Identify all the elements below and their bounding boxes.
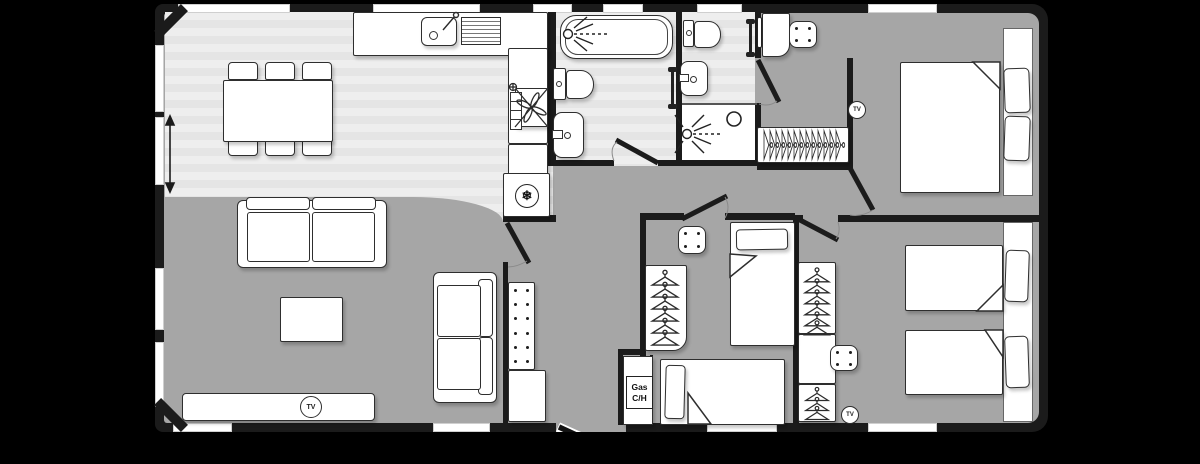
sofa-cushion bbox=[312, 212, 375, 262]
wardrobe bbox=[798, 384, 836, 422]
dressing-table bbox=[762, 13, 790, 57]
sofa-back bbox=[312, 197, 376, 210]
hall-shelf-unit bbox=[508, 282, 535, 370]
toilet-bowl bbox=[694, 21, 721, 48]
double-bed bbox=[900, 62, 1000, 193]
wardrobe bbox=[757, 127, 849, 163]
sofa-cushion bbox=[437, 338, 481, 390]
gas-label-line2: C/H bbox=[632, 393, 647, 404]
pillow bbox=[1004, 250, 1030, 303]
window bbox=[155, 45, 164, 112]
wardrobe bbox=[645, 265, 687, 351]
basin-tap bbox=[679, 74, 689, 82]
mirror bbox=[757, 17, 762, 48]
window bbox=[433, 423, 490, 432]
entrance-door-opening bbox=[556, 423, 626, 432]
sink-drain bbox=[429, 31, 438, 40]
kitchen-sink bbox=[421, 17, 457, 46]
hob-burner bbox=[510, 119, 522, 130]
basin-tap-handle bbox=[564, 132, 571, 139]
wall bbox=[725, 213, 795, 220]
snowflake-icon: ❄ bbox=[515, 184, 539, 208]
toilet-flush bbox=[556, 81, 562, 87]
sink-drainer bbox=[461, 17, 501, 45]
dining-table bbox=[223, 80, 333, 142]
pillow bbox=[1004, 336, 1030, 389]
bedside-unit bbox=[678, 226, 706, 254]
towel-rail-cap bbox=[668, 104, 677, 109]
tv-unit bbox=[182, 393, 375, 421]
hall-cupboard bbox=[508, 370, 546, 422]
sofa bbox=[237, 200, 387, 268]
kitchen-counter bbox=[508, 144, 548, 175]
wall bbox=[793, 215, 803, 222]
window bbox=[697, 4, 742, 13]
towel-rail bbox=[671, 70, 674, 106]
sofa-cushion bbox=[247, 212, 310, 262]
floor-plan-canvas: TV ❄ Gas C/H bbox=[0, 0, 1200, 464]
pillow bbox=[1003, 68, 1031, 114]
shower-room-partition bbox=[682, 103, 757, 105]
window bbox=[178, 4, 290, 13]
coffee-table bbox=[280, 297, 343, 342]
toilet-bowl bbox=[566, 70, 594, 99]
bedside-unit bbox=[830, 345, 858, 371]
window bbox=[155, 268, 164, 330]
stool bbox=[789, 21, 817, 48]
pillow bbox=[1003, 116, 1031, 162]
bath-inner bbox=[565, 19, 668, 55]
tv-label: TV bbox=[846, 412, 854, 418]
snowflake-glyph: ❄ bbox=[522, 188, 533, 204]
sofa-cushion bbox=[437, 285, 481, 337]
wall bbox=[548, 160, 614, 166]
window bbox=[868, 423, 937, 432]
towel-rail bbox=[749, 22, 752, 54]
wall bbox=[838, 215, 1039, 222]
floor-plan: TV ❄ Gas C/H bbox=[155, 4, 1048, 432]
single-bed bbox=[905, 245, 1003, 311]
window bbox=[155, 117, 164, 185]
gas-ch-label: Gas C/H bbox=[626, 376, 653, 409]
sofa-back bbox=[246, 197, 310, 210]
window bbox=[155, 342, 164, 407]
window bbox=[603, 4, 643, 13]
shower-room-floor bbox=[682, 105, 757, 165]
towel-rail-cap bbox=[746, 52, 755, 57]
towel-rail-cap bbox=[668, 67, 677, 72]
gas-label-line1: Gas bbox=[631, 382, 647, 393]
tv-badge: TV bbox=[300, 396, 322, 418]
dining-chair bbox=[265, 62, 295, 80]
towel-rail-cap bbox=[746, 19, 755, 24]
basin-tap bbox=[552, 130, 563, 139]
tv-badge: TV bbox=[848, 101, 866, 119]
dining-chair bbox=[302, 62, 332, 80]
tv-label: TV bbox=[853, 107, 861, 113]
pillow bbox=[664, 365, 685, 420]
wall bbox=[640, 213, 684, 220]
tv-label: TV bbox=[307, 404, 316, 411]
pillow bbox=[736, 229, 788, 251]
tv-badge: TV bbox=[841, 406, 859, 424]
sofa bbox=[433, 272, 497, 403]
wall bbox=[757, 163, 849, 170]
basin-tap-handle bbox=[690, 76, 697, 83]
dining-chair bbox=[228, 62, 258, 80]
wall bbox=[658, 160, 761, 166]
single-bed bbox=[905, 330, 1003, 395]
toilet-flush bbox=[686, 30, 692, 36]
window bbox=[868, 4, 937, 13]
wardrobe bbox=[798, 262, 836, 334]
